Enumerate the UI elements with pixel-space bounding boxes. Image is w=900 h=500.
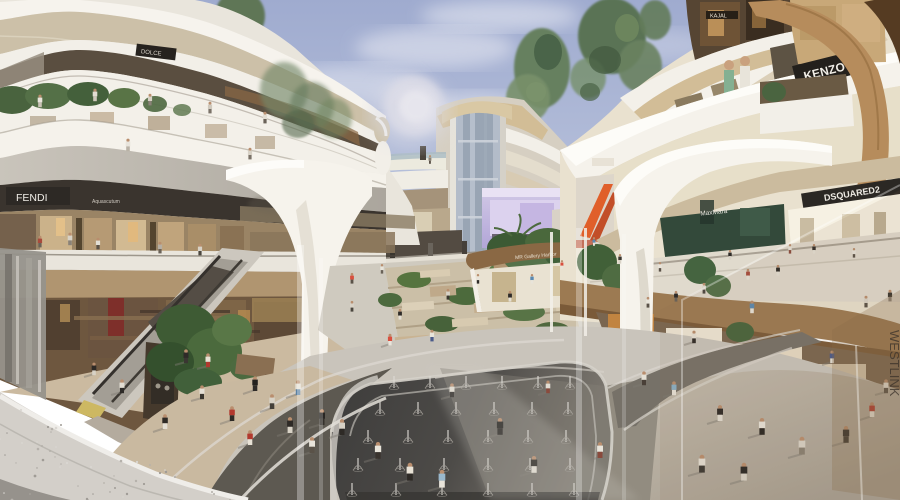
svg-text:FENDI: FENDI [16,192,48,204]
svg-text:KAJAL: KAJAL [710,14,727,20]
svg-text:Aquascutum: Aquascutum [92,199,120,205]
svg-text:WESTLINK: WESTLINK [887,330,900,397]
